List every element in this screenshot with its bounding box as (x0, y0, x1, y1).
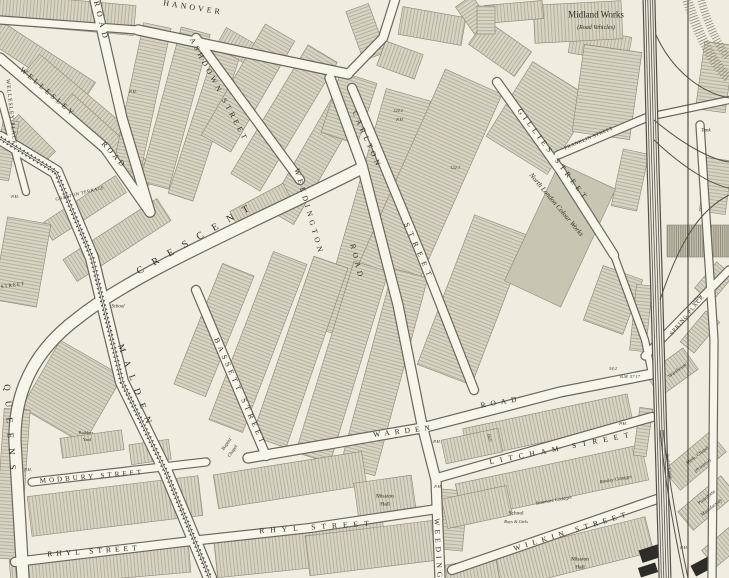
map-marker: P.H. (434, 485, 442, 490)
map-marker: P.H. (24, 468, 32, 473)
map-marker: 54·2 (609, 367, 617, 372)
place-label: Hall (380, 502, 389, 508)
map-marker: 124·2 (393, 109, 403, 114)
map-marker: P.H. (396, 118, 404, 123)
place-label: Midland Works (568, 11, 624, 20)
map-marker: P.H. (129, 90, 137, 95)
place-label: Boys & Girls (504, 520, 528, 525)
map-marker: P.H. (11, 195, 19, 200)
map-marker: P.H. (433, 440, 441, 445)
place-label: Mission (571, 557, 589, 563)
place-label: Yard (83, 438, 91, 442)
place-label: Builders (79, 431, 94, 435)
place-label: School (508, 511, 523, 517)
place-label: Mission (376, 494, 394, 500)
place-label: School (111, 306, 124, 311)
map-marker: P.H. (680, 546, 688, 551)
place-label: Hall (575, 565, 584, 571)
map-viewport: HANOVERROADWELLESLEYROADWELLESLEY PLACEA… (0, 0, 729, 578)
place-label: Hall (486, 434, 492, 442)
place-label: (Road Vehicles) (577, 25, 615, 31)
place-label: Tank (701, 129, 711, 134)
map-marker: B.M. 57·17 (620, 375, 640, 380)
map-marker: 122·1 (450, 166, 460, 171)
map-marker: P.H. (619, 422, 627, 427)
ordnance-survey-map (0, 0, 729, 578)
